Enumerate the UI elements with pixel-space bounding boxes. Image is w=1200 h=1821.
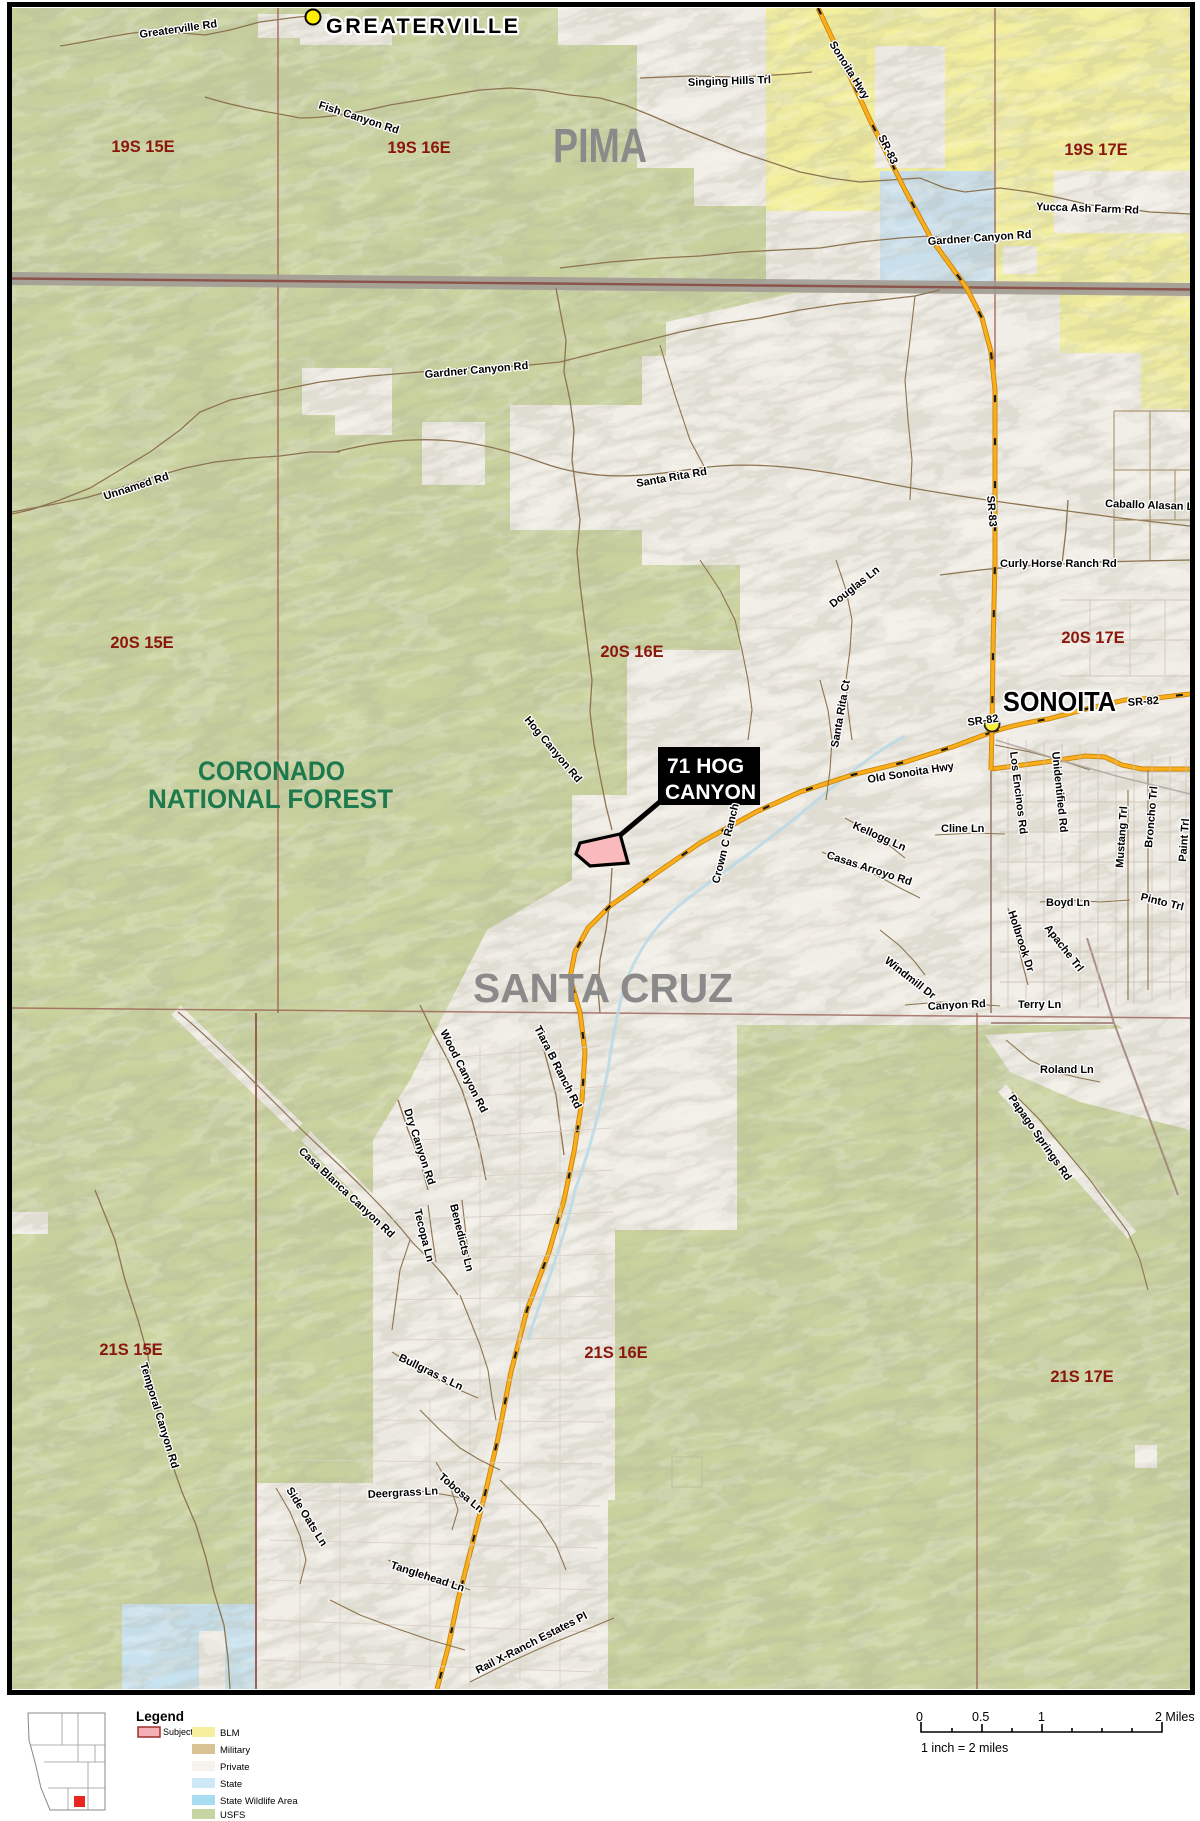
svg-text:71 HOG: 71 HOG — [667, 755, 744, 778]
svg-text:NATIONAL FOREST: NATIONAL FOREST — [148, 784, 393, 814]
svg-text:USFS: USFS — [220, 1810, 245, 1821]
svg-text:1: 1 — [1038, 1710, 1045, 1724]
svg-text:GREATERVILLE: GREATERVILLE — [326, 14, 518, 38]
svg-text:20S 15E: 20S 15E — [110, 634, 173, 652]
svg-text:PIMA: PIMA — [553, 120, 647, 173]
svg-text:Cline Ln: Cline Ln — [941, 823, 985, 835]
svg-text:BLM: BLM — [220, 1728, 240, 1739]
svg-text:0: 0 — [916, 1710, 923, 1724]
svg-text:SONOITA: SONOITA — [1003, 686, 1116, 717]
svg-text:21S 15E: 21S 15E — [99, 1341, 162, 1359]
svg-text:Military: Military — [220, 1745, 250, 1756]
svg-text:Curly Horse Ranch Rd: Curly Horse Ranch Rd — [1000, 558, 1117, 570]
svg-text:19S 17E: 19S 17E — [1064, 141, 1127, 159]
svg-text:State Wildlife Area: State Wildlife Area — [220, 1796, 298, 1807]
svg-text:Roland Ln: Roland Ln — [1040, 1064, 1094, 1076]
svg-text:19S 16E: 19S 16E — [387, 139, 450, 157]
svg-text:19S 15E: 19S 15E — [111, 138, 174, 156]
svg-text:20S 16E: 20S 16E — [600, 643, 663, 661]
svg-text:21S 17E: 21S 17E — [1050, 1368, 1113, 1386]
svg-text:Subject: Subject — [163, 1727, 194, 1737]
svg-text:Legend: Legend — [136, 1709, 184, 1724]
svg-text:1 inch = 2 miles: 1 inch = 2 miles — [921, 1741, 1008, 1755]
svg-text:CANYON: CANYON — [665, 781, 756, 804]
svg-text:Boyd Ln: Boyd Ln — [1046, 897, 1090, 909]
svg-text:21S 16E: 21S 16E — [584, 1344, 647, 1362]
svg-text:SR-82: SR-82 — [1127, 695, 1159, 709]
svg-text:SANTA CRUZ: SANTA CRUZ — [473, 965, 733, 1011]
svg-text:State: State — [220, 1779, 242, 1790]
svg-text:Terry Ln: Terry Ln — [1018, 999, 1061, 1011]
svg-text:20S 17E: 20S 17E — [1061, 629, 1124, 647]
svg-text:CORONADO: CORONADO — [198, 756, 345, 786]
svg-text:Private: Private — [220, 1762, 250, 1773]
svg-text:0.5: 0.5 — [972, 1710, 989, 1724]
svg-text:2 Miles: 2 Miles — [1155, 1710, 1195, 1724]
